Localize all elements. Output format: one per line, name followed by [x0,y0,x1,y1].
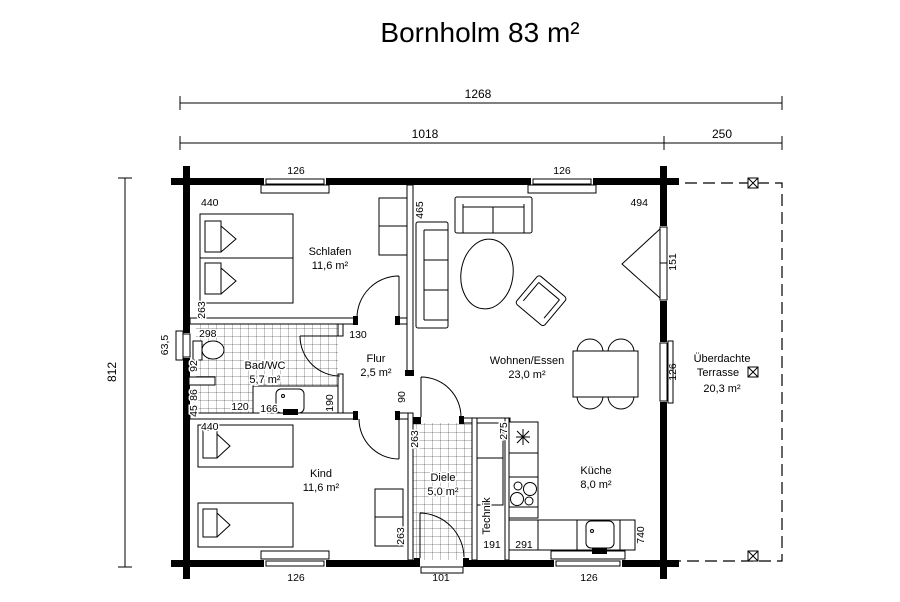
terrace-post-middle [748,367,758,377]
bad-label: Bad/WC [245,360,286,372]
bath-shelf [189,377,215,385]
wohnen-opening-swing [421,377,461,417]
dim-bad-wall-upper: 92 [188,360,200,372]
wohnen-label: Wohnen/Essen [490,355,564,367]
kitchen-sink [586,521,614,548]
dim-total-depth: 812 [105,362,119,382]
chair [577,339,603,352]
dim-technik-width: 191 [483,539,501,551]
diele-label: Diele [430,472,455,484]
terrace: Überdachte Terrasse 20,3 m² [667,178,782,561]
kind-area: 11,6 m² [303,482,340,494]
dim-bad-width: 298 [199,328,217,340]
dim-total-width: 1268 [465,87,492,101]
dim-wohnen-width: 494 [630,197,648,209]
dim-window-right: 126 [667,363,679,381]
terrace-label-1: Überdachte [694,353,751,365]
chair [608,396,634,409]
dim-bad-cabinet: 120 [231,401,249,413]
chair [577,396,603,409]
dim-bad-sink: 166 [260,403,278,415]
schlafen-area: 11,6 m² [312,260,349,272]
schlafen-door-swing [357,276,399,318]
kitchen-tap [592,548,607,554]
terrace-post-bottom [748,551,758,561]
dim-flur-opening: 90 [396,391,408,403]
terrace-post-top [748,178,758,188]
dim-kueche-depth: 740 [635,526,647,544]
technik-label: Technik [481,497,493,535]
dim-terrace-width: 250 [712,127,732,141]
dining-table [573,351,638,397]
dim-kueche-counter: 291 [515,539,533,551]
dim-house-width: 1018 [412,127,439,141]
kueche-area: 8,0 m² [580,479,612,491]
dim-window-bottom-right: 126 [580,572,598,584]
window-bottom-right: 126 [551,551,625,584]
diele-area: 5,0 m² [427,486,459,498]
toilet [193,341,224,360]
kind-door-swing [359,419,399,459]
rug-oval [456,236,517,313]
terrace-label-2: Terrasse [697,367,739,379]
dim-window-bottom-left: 126 [287,572,305,584]
dim-partition: 465 [414,201,426,219]
terrace-door: 151 [622,226,679,301]
flur-area: 2,5 m² [360,367,392,379]
schlafen-label: Schlafen [309,246,352,258]
dim-bad-wall-lower: 86 [188,389,200,401]
dim-terrace-door: 151 [667,253,679,271]
dim-schlafen-width: 440 [201,197,219,209]
dim-window-top-left: 126 [287,165,305,177]
dim-diele-wall: 263 [409,430,421,448]
sofa-horizontal [455,197,532,233]
window-bottom-left: 126 [261,551,329,584]
kitchen-counter [509,422,635,554]
kind-label: Kind [310,468,332,480]
chair [608,339,634,352]
plan-title: Bornholm 83 m² [380,17,579,48]
floorplan-page: Bornholm 83 m² 1268 1018 250 812 Überdac… [0,0,900,602]
dim-kind-depth: 263 [395,527,407,545]
wohnen-area: 23,0 m² [508,369,546,381]
dim-bath-window: 63,5 [159,335,171,356]
window-top-left: 126 [261,165,329,193]
dim-window-top-right: 126 [553,165,571,177]
floorplan-drawing: Bornholm 83 m² 1268 1018 250 812 Überdac… [0,0,900,602]
dim-kueche-wall: 275 [498,422,510,440]
dim-kind-width: 440 [201,421,219,433]
armchair [515,275,567,327]
double-bed [200,214,293,303]
window-top-right: 126 [528,165,596,193]
schlafen-wardrobe [379,198,407,255]
kueche-label: Küche [580,465,611,477]
window-right: 126 [660,341,679,403]
sink-star-symbol [516,429,530,445]
flur-label: Flur [367,353,386,365]
dim-schlafen-door: 130 [349,329,367,341]
window-bath-left: 63,5 [159,331,190,360]
kind-bed-bottom [198,503,293,547]
dim-bad-door: 190 [324,394,336,412]
sofa-vertical [416,222,448,328]
terrace-area: 20,3 m² [703,383,741,395]
bad-area: 5,7 m² [249,374,281,386]
dim-bad-wall-small: 45 [188,405,200,417]
dim-schlafen-depth: 263 [196,301,208,319]
dim-entrance-door: 101 [432,572,450,584]
dining-table-group [573,339,638,409]
